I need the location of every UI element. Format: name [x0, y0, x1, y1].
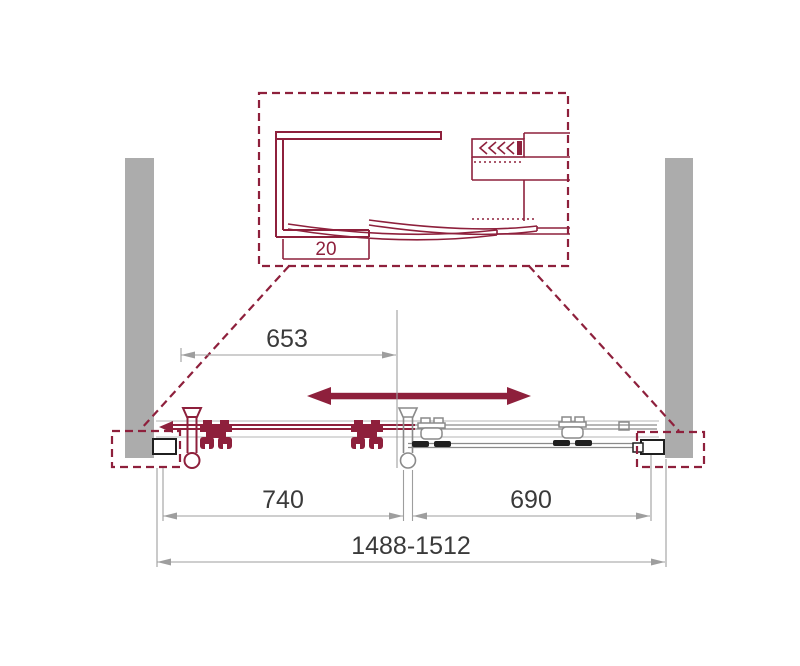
detail-dimension-label: 20	[315, 239, 336, 260]
adjustment-chevrons-icon	[472, 139, 524, 157]
dimension-door-panel-right-label: 690	[510, 486, 552, 514]
wall-profile-left	[153, 439, 176, 454]
dimension-overall-range-label: 1488-1512	[351, 532, 471, 560]
detail-dimension-20: 20	[283, 239, 369, 260]
door-assembly	[156, 408, 659, 468]
fixed-door-knob	[399, 408, 417, 468]
diagram-svg: 20	[0, 0, 800, 666]
dimension-door-panel-left: 740	[163, 468, 404, 521]
detail-view: 20	[259, 93, 570, 266]
dimension-overall-range: 1488-1512	[157, 459, 666, 567]
wall-profile-section-drawing	[276, 132, 570, 240]
dimension-door-panel-left-label: 740	[262, 486, 304, 514]
dimension-opening-width-label: 653	[266, 325, 308, 353]
wall-right	[665, 158, 693, 458]
wall-left	[125, 158, 154, 458]
detail-connector-right	[529, 266, 679, 431]
fixed-door-roller-right	[553, 417, 592, 446]
slide-direction-arrow-icon	[307, 387, 531, 405]
sliding-door-knob	[183, 408, 201, 468]
wall-profile-right	[641, 440, 664, 454]
dimension-door-panel-right: 690	[413, 455, 652, 521]
fixed-door-roller-left	[412, 418, 451, 447]
shower-door-technical-diagram: 20	[0, 0, 800, 666]
